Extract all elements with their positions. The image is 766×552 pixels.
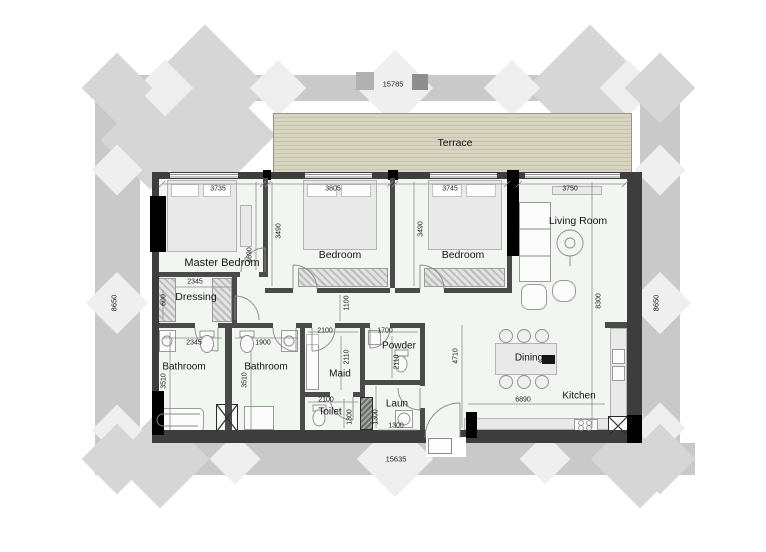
dim-dining-height: 4710 [453,348,460,364]
dim-overall-bottom: 15635 [386,455,407,464]
dim-bedroom2-height: 3490 [276,223,283,239]
dim-maid-width: 2100 [317,328,333,335]
room-label-bathroom1: Bathroom [162,362,205,373]
dim-dressing-depth: 600 [161,294,168,306]
room-label-toilet: Toilet [318,407,341,418]
dim-bedroom3-width: 3745 [442,186,458,193]
room-label-bedroom3: Bedroom [442,249,485,261]
dim-bathroom1-height: 3510 [161,373,168,389]
room-label-bathroom2: Bathroom [244,362,287,373]
dim-hallway-width: 1100 [344,295,351,310]
dim-master-width: 3735 [210,186,226,193]
dim-powder-height: 2110 [394,354,401,369]
room-label-living: Living Room [549,215,607,227]
dim-overall-top: 15785 [383,80,404,89]
room-label-laundry: Laun [386,399,408,410]
room-label-maid: Maid [329,369,351,380]
room-label-dressing: Dressing [175,291,216,303]
dim-dressing-width: 2345 [187,279,203,286]
window-glazing [170,175,620,178]
dim-bedroom2-width: 3805 [325,186,341,193]
dim-maid-height: 2110 [344,349,351,364]
dim-laundry-width: 1300 [388,423,404,430]
dim-living-width: 3750 [562,186,578,193]
room-label-kitchen: Kitchen [562,391,595,402]
dim-bathroom1-width: 2345 [186,340,202,347]
room-label-terrace: Terrace [437,137,472,149]
dim-overall-left: 8650 [110,295,119,312]
dim-living-height: 8300 [596,293,603,309]
dim-powder-width: 1700 [377,328,393,335]
dim-toilet-width: 2100 [318,397,334,404]
room-label-powder: Powder [382,341,416,352]
shaft-x-marks [217,405,627,435]
dim-kitchen-width: 6890 [515,397,531,404]
floor-plan-canvas: Terrace Master Bedrom Dressing Bedroom B… [0,0,766,552]
dim-laundry-height: 1300 [373,409,380,425]
dim-master-height: 4690 [247,247,254,263]
dim-toilet-height: 1300 [347,409,354,425]
dim-overall-right: 8650 [652,295,661,312]
dim-bedroom3-height: 3490 [418,221,425,237]
sideboard [542,355,555,364]
room-label-dining: Dining [515,353,543,364]
room-label-bedroom2: Bedroom [319,249,362,261]
dim-bathroom2-width: 1900 [255,340,271,347]
dim-bathroom2-height: 3510 [242,372,249,388]
